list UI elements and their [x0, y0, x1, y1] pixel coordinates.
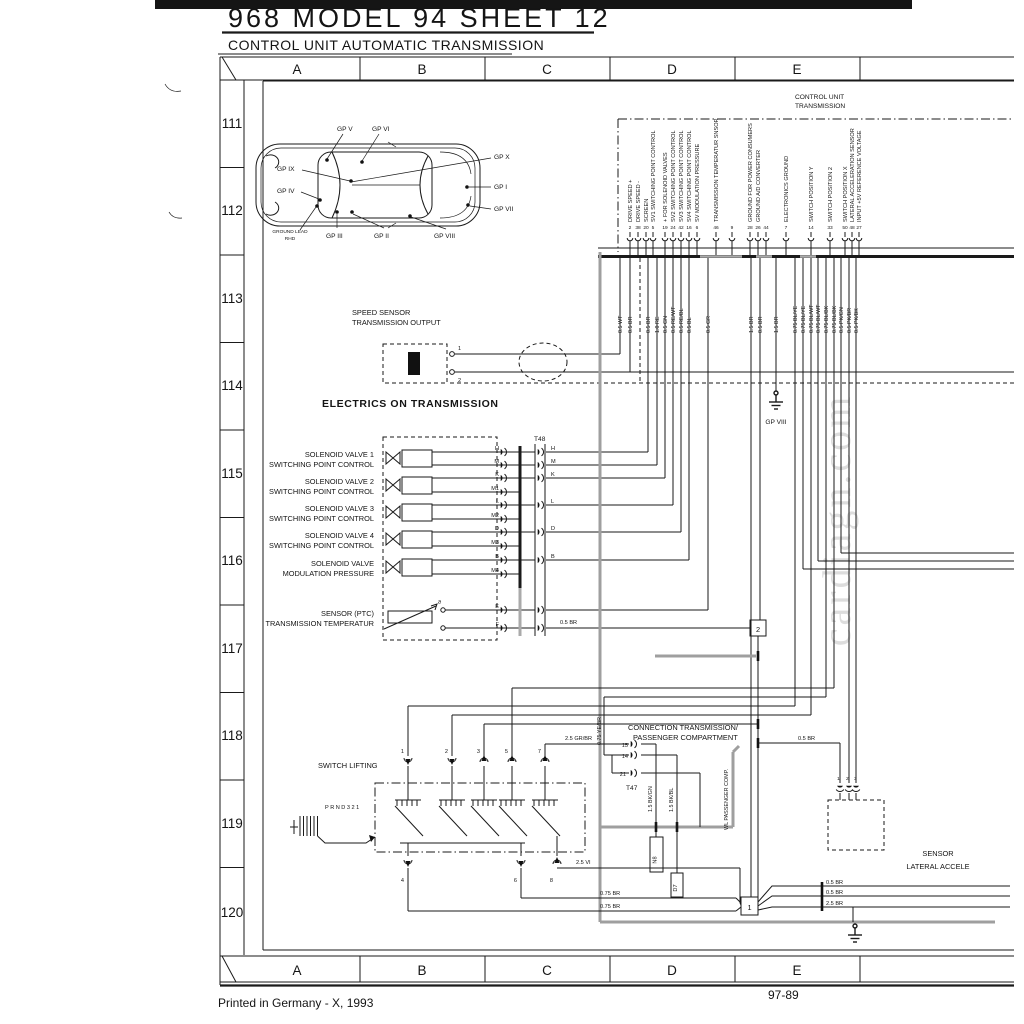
column-label: C [542, 62, 552, 77]
wire-color: 0.5 BR [560, 620, 577, 626]
wire-color: 1.5 BR [774, 316, 780, 333]
t48-pin: D [495, 526, 499, 532]
pin-number: 42 [678, 225, 684, 231]
pin-label: DRIVE SPEED + [628, 180, 634, 222]
sheet-number: 97-89 [768, 988, 799, 1002]
row-label: 116 [221, 553, 243, 568]
t48-pin: L [496, 499, 499, 505]
pin-number: 24 [670, 225, 676, 231]
t47-pin: 14 [622, 754, 628, 760]
column-label: D [667, 963, 677, 978]
pin-number: 19 [662, 225, 668, 231]
pin-label: SWITCH POSITION 2 [828, 167, 834, 222]
bottom-wires: 2.5 VI 0.75 BR 0.75 BR 1 0.5 BR 0.5 BR 2… [408, 860, 1010, 942]
wire-color: 0.75 BL/BK [832, 305, 838, 333]
splice-2: 2 [750, 620, 766, 897]
valve-label: MODULATION PRESSURE [283, 569, 375, 578]
wire-color: 0.5 BL [687, 317, 693, 333]
splice-2-label: 2 [756, 625, 760, 634]
electrics-heading: ELECTRICS ON TRANSMISSION [322, 398, 499, 410]
valve-label: SWITCHING POINT CONTROL [269, 460, 374, 469]
pin-number: 16 [686, 225, 692, 231]
paper-curl-mark [169, 212, 182, 218]
t48-pin: H [495, 446, 499, 452]
switch-terminal: 2 [445, 749, 448, 755]
column-label: E [792, 62, 801, 77]
connection-title: CONNECTION TRANSMISSION/ [628, 723, 739, 732]
wire-color: 0.75 BL/YE [793, 305, 799, 333]
footer: Printed in Germany - X, 1993 97-89 [218, 988, 799, 1010]
column-label: B [417, 963, 426, 978]
ground-symbol [848, 924, 862, 942]
wire-color: 0.5 BR [826, 890, 843, 896]
gp-label: GP VII [494, 206, 513, 213]
t48-pin: M4 [491, 568, 499, 574]
wiring-looms [600, 252, 995, 922]
t48-pin: D [551, 526, 555, 532]
wire-color: 1.5 BR [749, 316, 755, 333]
pin-number: 9 [731, 225, 734, 231]
switch-terminal: 6 [514, 878, 517, 884]
splice-1-label: 1 [747, 903, 751, 912]
pin-number: 6 [696, 225, 699, 231]
gp-label: GP VIII [434, 233, 455, 240]
pin-label: ELECTRONICS GROUND [784, 156, 790, 222]
switch-lifting-label: SWITCH LIFTING [318, 761, 378, 770]
switch-terminal: 4 [401, 878, 404, 884]
t48-connector: T48 H M K M1 L M2 D M3 B M4 E F H M K L … [491, 436, 750, 636]
control-unit-title: TRANSMISSION [795, 103, 845, 110]
column-label: C [542, 963, 552, 978]
pin-label: SV MODULATION PRESSURE [695, 144, 701, 222]
t48-pin: L [551, 499, 554, 505]
sensor-label: SENSOR [922, 849, 953, 858]
pin-number: 44 [763, 225, 769, 231]
wire-color: 1.5 BK/BL [669, 788, 675, 812]
switch-terminal: 5 [505, 749, 508, 755]
wire-color: 0.5 WT [618, 315, 624, 333]
valve-label: SOLENOID VALVE [311, 559, 374, 568]
gp-label: GP IV [277, 188, 295, 195]
gp-label: GP VI [372, 126, 390, 133]
wire-color: 0.75 BR [600, 904, 620, 910]
wire-color: 0.5 GR [706, 316, 712, 333]
page-subtitle: CONTROL UNIT AUTOMATIC TRANSMISSION [228, 37, 544, 53]
pin-label: TRANSMISSION TEMPERATUR SNSOR [714, 118, 720, 222]
valve-label: SWITCHING POINT CONTROL [269, 541, 374, 550]
pin-number: 33 [827, 225, 833, 231]
wire-color: 0.5 RE/WT [671, 306, 677, 333]
gp-label: GP IX [277, 166, 295, 173]
pin-number: 38 [635, 225, 641, 231]
switch-terminal: 1 [401, 749, 404, 755]
t47-label: T47 [626, 785, 638, 792]
speed-pin: 1 [458, 346, 461, 352]
column-label: E [792, 963, 801, 978]
valve-label: SWITCHING POINT CONTROL [269, 514, 374, 523]
t48-pin: M3 [491, 540, 499, 546]
row-label: 115 [221, 466, 243, 481]
component-n8 [650, 837, 663, 872]
speed-sensor-label: TRANSMISSION OUTPUT [352, 318, 441, 327]
ground-point-dots [315, 158, 470, 218]
gp-label: GP I [494, 184, 507, 191]
wire-color: 0.5 RE/BL [679, 308, 685, 333]
gp8-ground: GP VIII [765, 391, 786, 426]
car-inset: GP V GP VI GP IX GP IV GP X GP I GP VII … [256, 126, 513, 242]
pin-number: 26 [755, 225, 761, 231]
t47-block: CONNECTION TRANSMISSION/ PASSENGER COMPA… [545, 723, 739, 897]
page-title: 968 MODEL 94 SHEET 12 [228, 3, 611, 33]
column-label: B [417, 62, 426, 77]
t47-pin: 15 [622, 743, 628, 749]
wire-color: 0.5 BR [826, 880, 843, 886]
valve-label: SOLENOID VALVE 4 [305, 531, 374, 540]
gp-label: GP V [337, 126, 353, 133]
valve-label: SOLENOID VALVE 3 [305, 504, 374, 513]
t48-pin: F [496, 622, 500, 628]
control-unit-title: CONTROL UNIT [795, 94, 844, 101]
t48-pin: B [551, 554, 555, 560]
wire-color: 0.5 PK/BR [847, 308, 853, 333]
bus-bars [598, 248, 1014, 257]
switch-terminal: 3 [477, 749, 480, 755]
row-label: 119 [221, 816, 243, 831]
control-unit: CONTROL UNIT TRANSMISSION 2 38 20 5 19 2… [618, 94, 1014, 256]
row-label: 118 [221, 728, 243, 743]
pin-label: GROUND A/D CONVERTER [756, 150, 762, 222]
wire-color: 0.5 GN [663, 316, 669, 333]
t48-pin: M [551, 459, 556, 465]
pin-number: 20 [643, 225, 649, 231]
prnd-label: PRND321 [325, 805, 361, 811]
wire-color: 0.75 BR [600, 891, 620, 897]
column-label: A [292, 963, 301, 978]
wire-color: 0.75 BL/BK [824, 305, 830, 333]
row-label: 120 [221, 905, 244, 920]
paper-curl-mark [165, 84, 181, 91]
pin-number: 5 [652, 225, 655, 231]
valve-label: SOLENOID VALVE 2 [305, 477, 374, 486]
valve-label: TRANSMISSION TEMPERATUR [265, 619, 374, 628]
t48-wires [546, 452, 750, 628]
sensor-label: LATERAL ACCELE [906, 862, 969, 871]
t48-pin: H [551, 446, 555, 452]
column-label: A [292, 62, 301, 77]
row-label: 111 [222, 116, 243, 131]
ground-lead-label: RHD [285, 236, 296, 242]
wire-color: 0.75 BL/WT [809, 304, 815, 333]
valve-label: SOLENOID VALVE 1 [305, 450, 374, 459]
pin-label: SWITCH POSITION X [843, 166, 849, 222]
wire-color: 0.5 BR [646, 316, 652, 333]
t48-pin: M [494, 459, 499, 465]
pin-number: 27 [856, 225, 862, 231]
wire-color: 2.5 VI [576, 860, 591, 866]
wire-color: 0.5 BR [758, 316, 764, 333]
sensor-pin: 1 [837, 776, 840, 782]
sensor-pin: 3 [854, 776, 857, 782]
wire-color: 0.75 YE/BR [597, 717, 603, 745]
pin-label: DRIVE SPEED - [636, 181, 642, 222]
pin-label: GROUND FOR POWER CONSUMERS [748, 123, 754, 222]
prnd-symbol [290, 816, 375, 843]
t48-label: T48 [534, 436, 546, 443]
switch-terminal: 8 [550, 878, 553, 884]
wire-color: 2.5 BR [826, 901, 843, 907]
printed-in: Printed in Germany - X, 1993 [218, 996, 374, 1010]
switch-lifting: SWITCH LIFTING 1 2 3 5 7 4 [290, 749, 585, 884]
pin-label: SV3 SWITCHING POINT CONTROL [679, 130, 685, 222]
pin-number: 46 [713, 225, 719, 231]
t48-pin: E [495, 604, 499, 610]
pin-label: SV2 SWITCHING POINT CONTROL [671, 130, 677, 222]
valve-label: SWITCHING POINT CONTROL [269, 487, 374, 496]
loom-label: WL PASSENGER COMP. [724, 769, 730, 830]
column-label: D [667, 62, 677, 77]
t48-pin: K [495, 472, 499, 478]
ptc-mark: ϑ [438, 600, 442, 606]
row-label: 113 [221, 291, 243, 306]
leader-lines [300, 134, 491, 230]
pin-label: + FOR SOLENOID VALVES [663, 152, 669, 222]
gp-label: GP III [326, 233, 343, 240]
pin-number: 7 [785, 225, 788, 231]
pin-label: INPUT +5V REFERENCE VOLTAGE [857, 130, 863, 222]
connection-title: PASSENGER COMPARTMENT [633, 733, 738, 742]
t48-pin: K [551, 472, 555, 478]
d7-label: D7 [673, 884, 679, 891]
pin-label: SV1 SWITCHING POINT CONTROL [651, 130, 657, 222]
gp8-label: GP VIII [765, 419, 786, 426]
wire-color: 0.5 BR [628, 316, 634, 333]
wiring-diagram-page: 968 MODEL 94 SHEET 12 CONTROL UNIT AUTOM… [0, 0, 1024, 1024]
row-label: 117 [221, 641, 243, 656]
pin-number: 2 [629, 225, 632, 231]
row-label: 114 [221, 378, 243, 393]
lateral-sensor: 0.5 BR 1 2 3 SENSOR LATERAL ACCELE [758, 736, 970, 871]
ground-lead-label: GROUND LEAD [272, 229, 308, 235]
wire-color: 2.5 GR/BR [565, 736, 592, 742]
sensor-pin: 2 [846, 776, 849, 782]
pin-number: 14 [808, 225, 814, 231]
wire-color: 0.75 BL/YE [801, 305, 807, 333]
t48-pin: B [495, 554, 499, 560]
wire-color: 1.0 RE [655, 316, 661, 333]
gp-label: GP X [494, 154, 510, 161]
n8-label: N8 [653, 856, 659, 863]
pin-label: SCREEN [644, 199, 650, 222]
wire-color: 1.5 BK/GN [648, 786, 654, 812]
wire-color: 0.5 BR [798, 736, 815, 742]
pin-label: SV4 SWITCHING POINT CONTROL [687, 130, 693, 222]
wire-color: 0.75 BL/WT [816, 304, 822, 333]
pin-label: SWITCH POSITION Y [809, 166, 815, 222]
pin-number: 50 [842, 225, 848, 231]
t47-pin: 21 [620, 772, 626, 778]
pin-number: 48 [849, 225, 855, 231]
watermark: cardiagn.com [814, 394, 859, 647]
pin-label: LATERAL ACCELERATION SENSOR [850, 128, 856, 222]
switch-terminal: 7 [538, 749, 541, 755]
t48-pin: M1 [491, 486, 499, 492]
gp-label: GP II [374, 233, 389, 240]
valve-symbols [384, 450, 445, 630]
speed-sensor-label: SPEED SENSOR [352, 308, 410, 317]
switch-contacts [395, 766, 560, 856]
wire-color: 0.5 PK/GN [839, 307, 845, 333]
t48-pin: M2 [491, 513, 499, 519]
valve-label: SENSOR (PTC) [321, 609, 374, 618]
wiring-diagram: 968 MODEL 94 SHEET 12 CONTROL UNIT AUTOM… [0, 0, 1024, 1024]
pin-number: 28 [747, 225, 753, 231]
row-label: 112 [221, 203, 243, 218]
wire-color: 0.5 PK/BK [854, 308, 860, 333]
